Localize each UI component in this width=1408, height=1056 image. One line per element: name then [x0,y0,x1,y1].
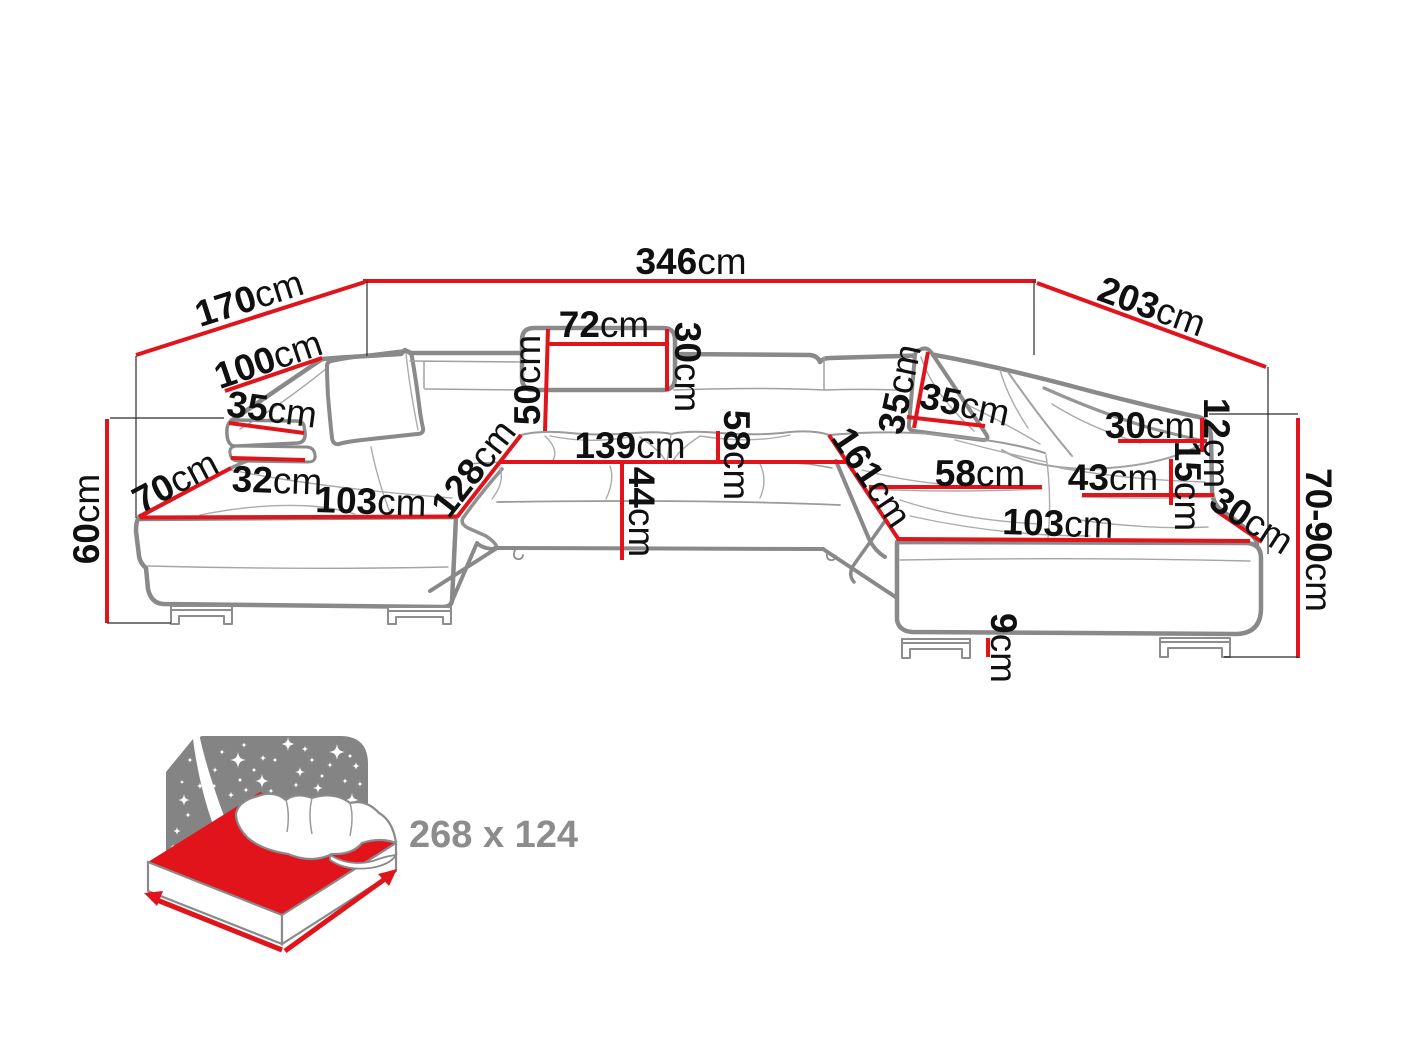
svg-text:32cm: 32cm [231,458,323,502]
svg-text:268 x 124: 268 x 124 [409,814,578,856]
svg-text:30cm: 30cm [667,322,708,412]
svg-text:70-90cm: 70-90cm [1298,468,1339,612]
svg-text:58cm: 58cm [935,453,1025,494]
svg-text:72cm: 72cm [559,304,649,345]
svg-text:44cm: 44cm [621,467,662,557]
svg-text:43cm: 43cm [1068,457,1158,498]
svg-text:50cm: 50cm [507,335,548,425]
svg-text:139cm: 139cm [574,425,685,466]
svg-text:58cm: 58cm [716,410,757,500]
svg-text:60cm: 60cm [66,474,107,564]
svg-text:15cm: 15cm [1167,441,1208,531]
svg-text:103cm: 103cm [1002,501,1114,546]
svg-text:103cm: 103cm [315,479,427,524]
svg-text:9cm: 9cm [983,613,1024,683]
svg-text:346cm: 346cm [635,241,746,282]
